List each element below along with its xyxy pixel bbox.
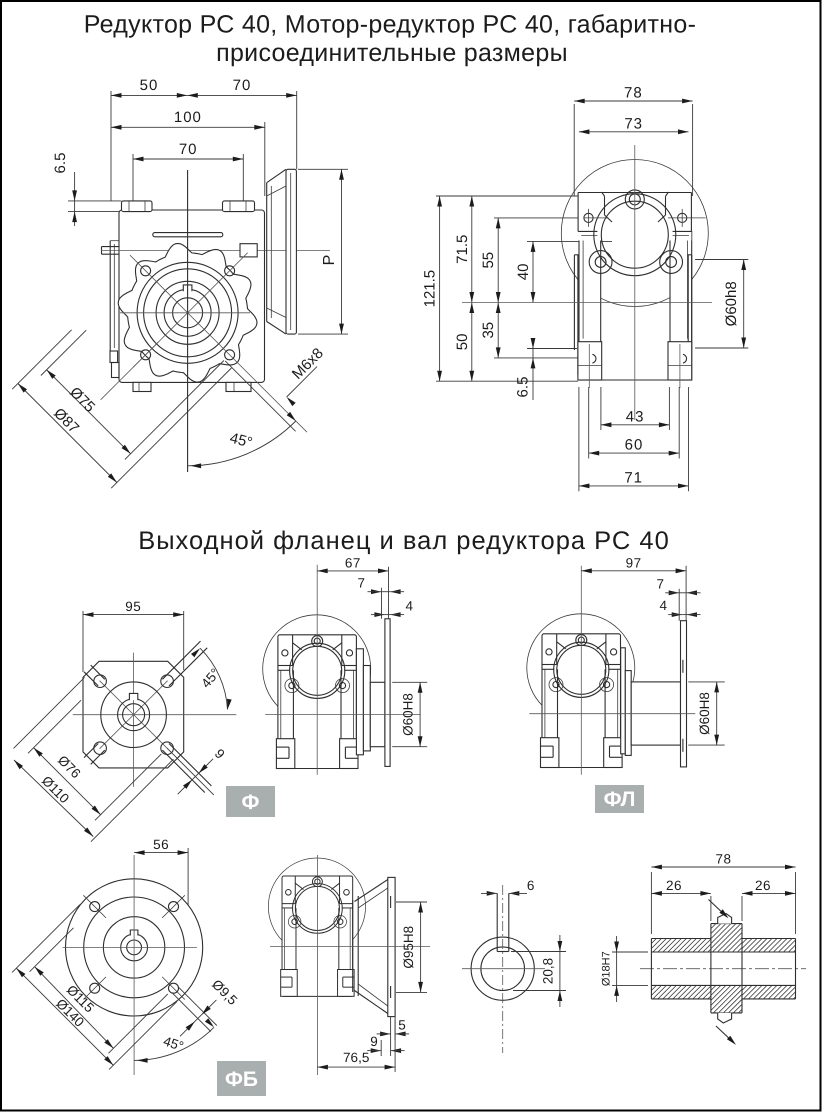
svg-text:100: 100 [174, 109, 202, 126]
svg-text:35: 35 [480, 322, 497, 339]
svg-text:4: 4 [405, 598, 413, 613]
svg-text:76,5: 76,5 [343, 1050, 369, 1065]
svg-text:95: 95 [125, 599, 141, 614]
svg-text:60: 60 [625, 437, 644, 454]
svg-text:9: 9 [370, 1034, 378, 1049]
svg-text:Редуктор РС 40, Мотор-редуктор: Редуктор РС 40, Мотор-редуктор РС 40, га… [84, 11, 696, 39]
svg-text:Ø60H8: Ø60H8 [401, 693, 416, 736]
svg-text:71: 71 [624, 469, 643, 486]
svg-text:ФЛ: ФЛ [604, 788, 636, 811]
svg-text:26: 26 [755, 878, 771, 893]
svg-text:P: P [321, 255, 338, 266]
svg-text:Ø60h8: Ø60h8 [723, 281, 740, 326]
svg-text:97: 97 [626, 555, 642, 570]
svg-text:121.5: 121.5 [422, 270, 439, 308]
svg-text:6.5: 6.5 [52, 153, 69, 174]
svg-text:Ø60H8: Ø60H8 [697, 692, 712, 735]
svg-text:6: 6 [527, 878, 535, 893]
svg-text:ФБ: ФБ [225, 1068, 258, 1091]
svg-text:Выходной фланец и вал редуктор: Выходной фланец и вал редуктора РС 40 [138, 527, 670, 555]
svg-text:43: 43 [626, 408, 645, 425]
svg-text:7: 7 [357, 575, 365, 590]
svg-text:56: 56 [153, 837, 169, 852]
svg-text:71.5: 71.5 [454, 235, 471, 264]
svg-text:20,8: 20,8 [541, 958, 556, 984]
svg-text:26: 26 [666, 878, 682, 893]
svg-text:50: 50 [454, 334, 471, 351]
svg-text:Ф: Ф [242, 791, 260, 814]
svg-text:67: 67 [345, 555, 361, 570]
svg-text:55: 55 [480, 252, 497, 269]
svg-text:4: 4 [659, 598, 667, 613]
svg-text:5: 5 [398, 1018, 406, 1033]
svg-text:78: 78 [715, 852, 731, 867]
svg-text:70: 70 [233, 77, 252, 94]
svg-text:присоединительные размеры: присоединительные размеры [216, 39, 568, 67]
svg-text:Ø18H7: Ø18H7 [601, 951, 613, 986]
svg-text:73: 73 [624, 115, 643, 132]
svg-text:Ø95H8: Ø95H8 [401, 926, 416, 969]
svg-text:70: 70 [179, 141, 198, 158]
svg-text:7: 7 [656, 576, 664, 591]
svg-text:50: 50 [140, 77, 159, 94]
svg-text:40: 40 [515, 264, 532, 281]
svg-text:78: 78 [624, 85, 643, 102]
svg-text:6.5: 6.5 [515, 377, 532, 398]
